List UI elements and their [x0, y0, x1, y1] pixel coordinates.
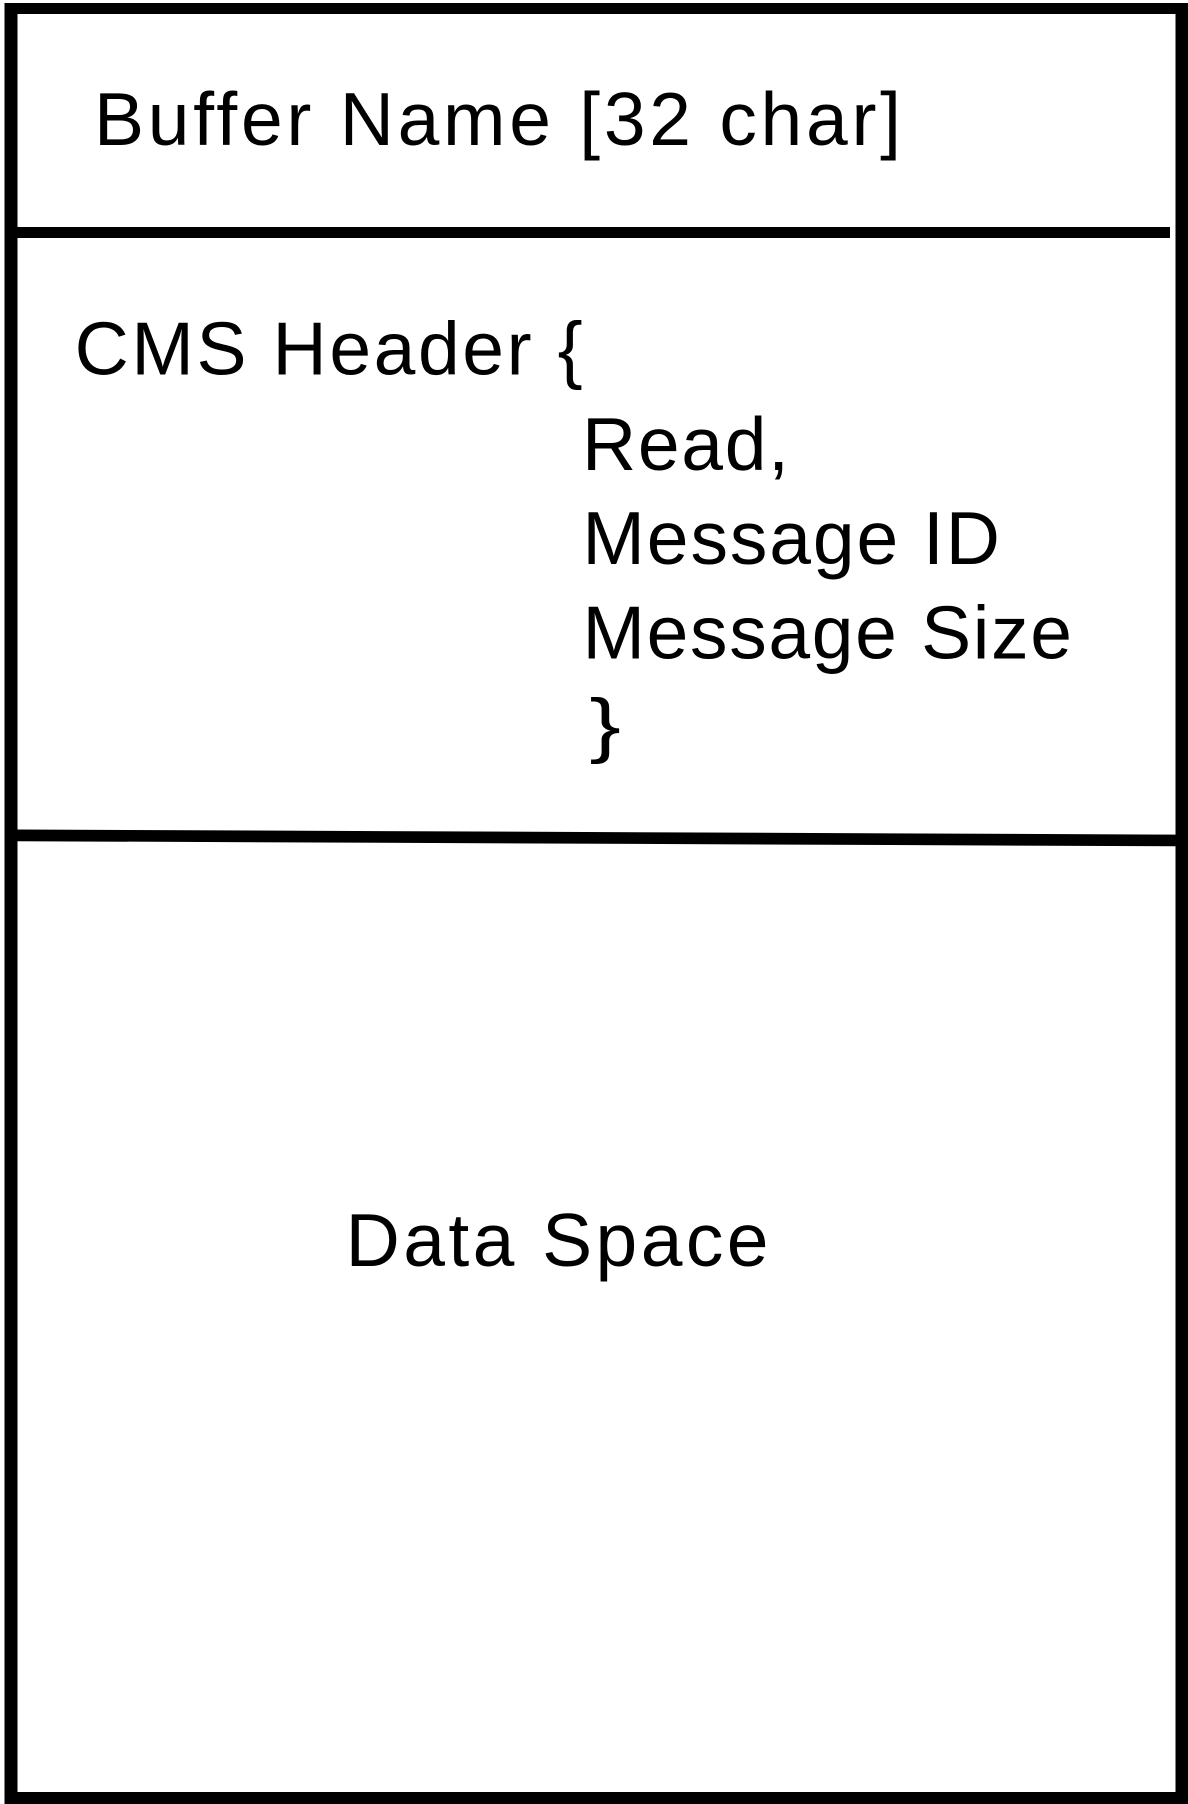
svg-text:Data Space: Data Space	[346, 1198, 769, 1282]
svg-text:Read,: Read,	[582, 402, 789, 486]
svg-text:CMS Header {: CMS Header {	[75, 307, 583, 391]
svg-text:Message Size: Message Size	[583, 591, 1073, 675]
svg-text:}: }	[590, 685, 621, 765]
